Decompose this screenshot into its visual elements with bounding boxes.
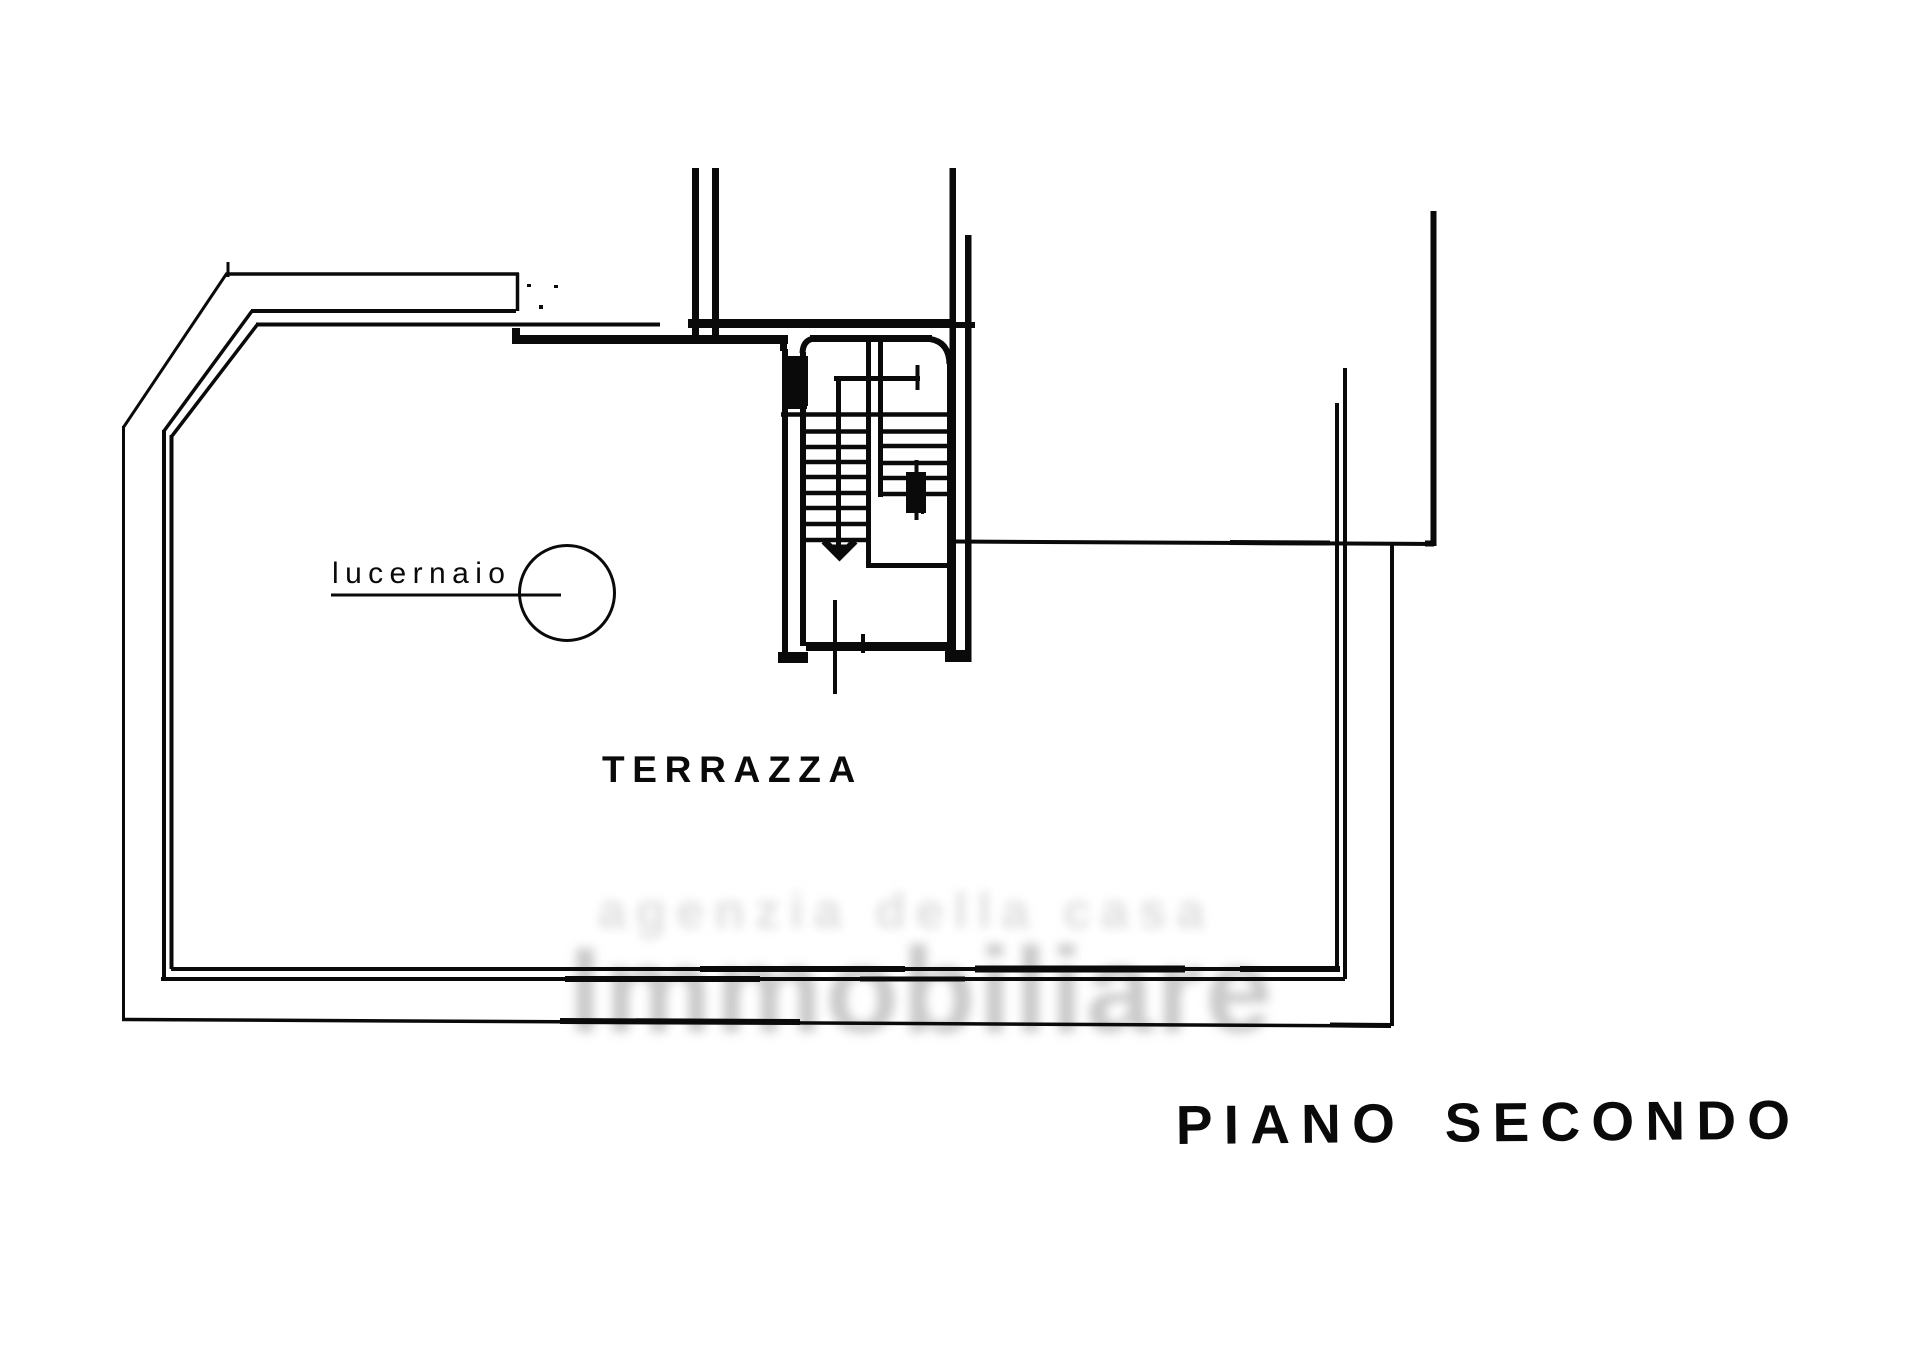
svg-text:Immobiliare: Immobiliare [568, 922, 1275, 1058]
svg-text:lucernaio: lucernaio [332, 557, 511, 590]
svg-text:agenzia della casa: agenzia della casa [598, 883, 1214, 939]
svg-text:TERRAZZA: TERRAZZA [602, 749, 863, 790]
svg-text:PIANO SECONDO: PIANO SECONDO [1176, 1089, 1802, 1156]
